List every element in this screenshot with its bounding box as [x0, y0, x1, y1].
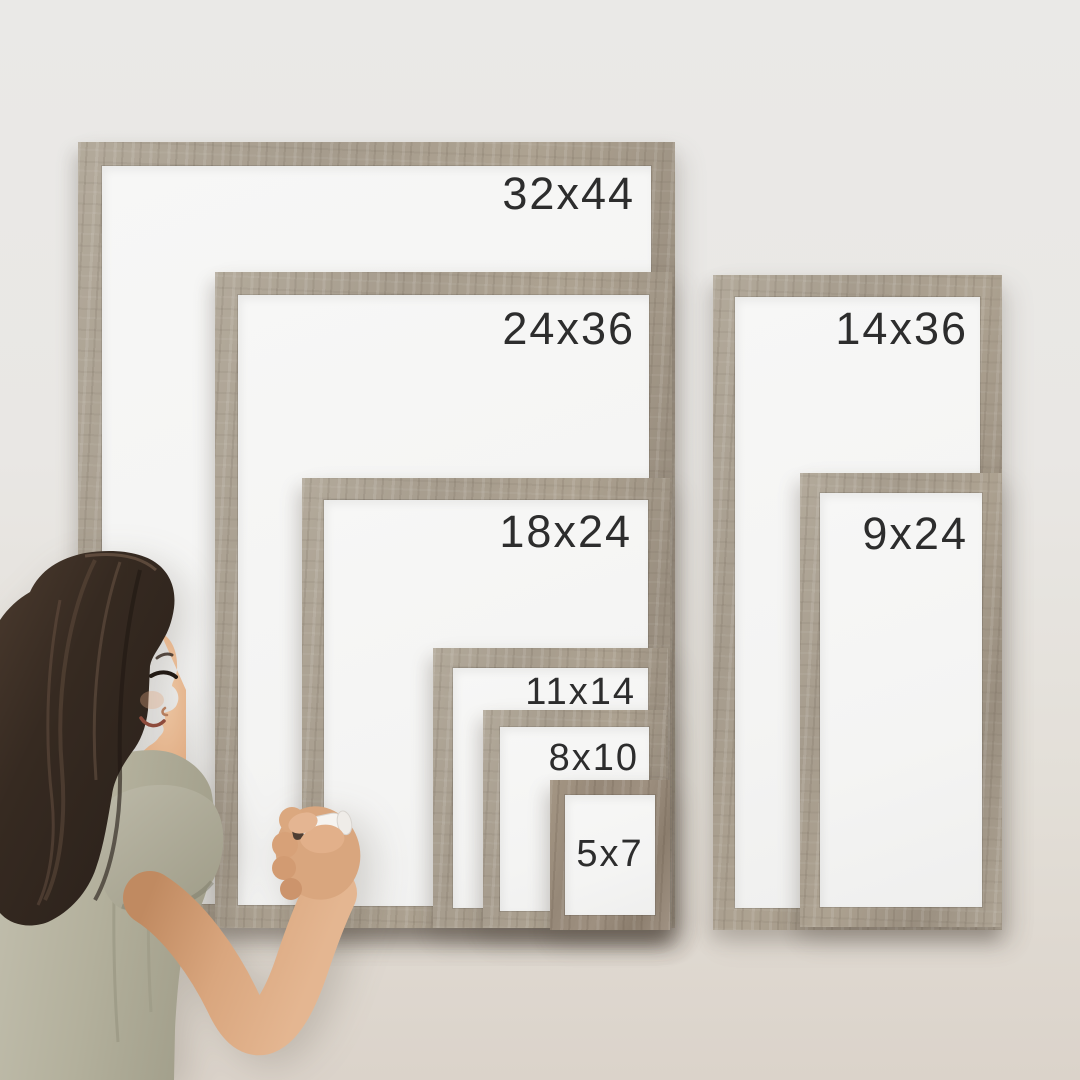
hair-strand: [38, 600, 60, 905]
whiteboard-5x7: 5x7: [565, 795, 655, 915]
scene-wall: 32x44 24x36 18x24 11x14 8x10 5x7 14x36 9…: [0, 0, 1080, 1080]
whiteboard-9x24: 9x24: [820, 493, 982, 907]
size-label-11x14: 11x14: [525, 673, 636, 713]
size-label-18x24: 18x24: [499, 508, 632, 555]
size-label-14x36: 14x36: [835, 305, 968, 352]
size-label-32x44: 32x44: [502, 170, 635, 217]
frame-9x24: 9x24: [800, 473, 1002, 927]
size-label-9x24: 9x24: [862, 510, 968, 557]
size-label-8x10: 8x10: [549, 739, 639, 779]
frame-5x7: 5x7: [550, 780, 670, 930]
size-label-24x36: 24x36: [502, 305, 635, 352]
size-label-5x7: 5x7: [576, 835, 643, 875]
